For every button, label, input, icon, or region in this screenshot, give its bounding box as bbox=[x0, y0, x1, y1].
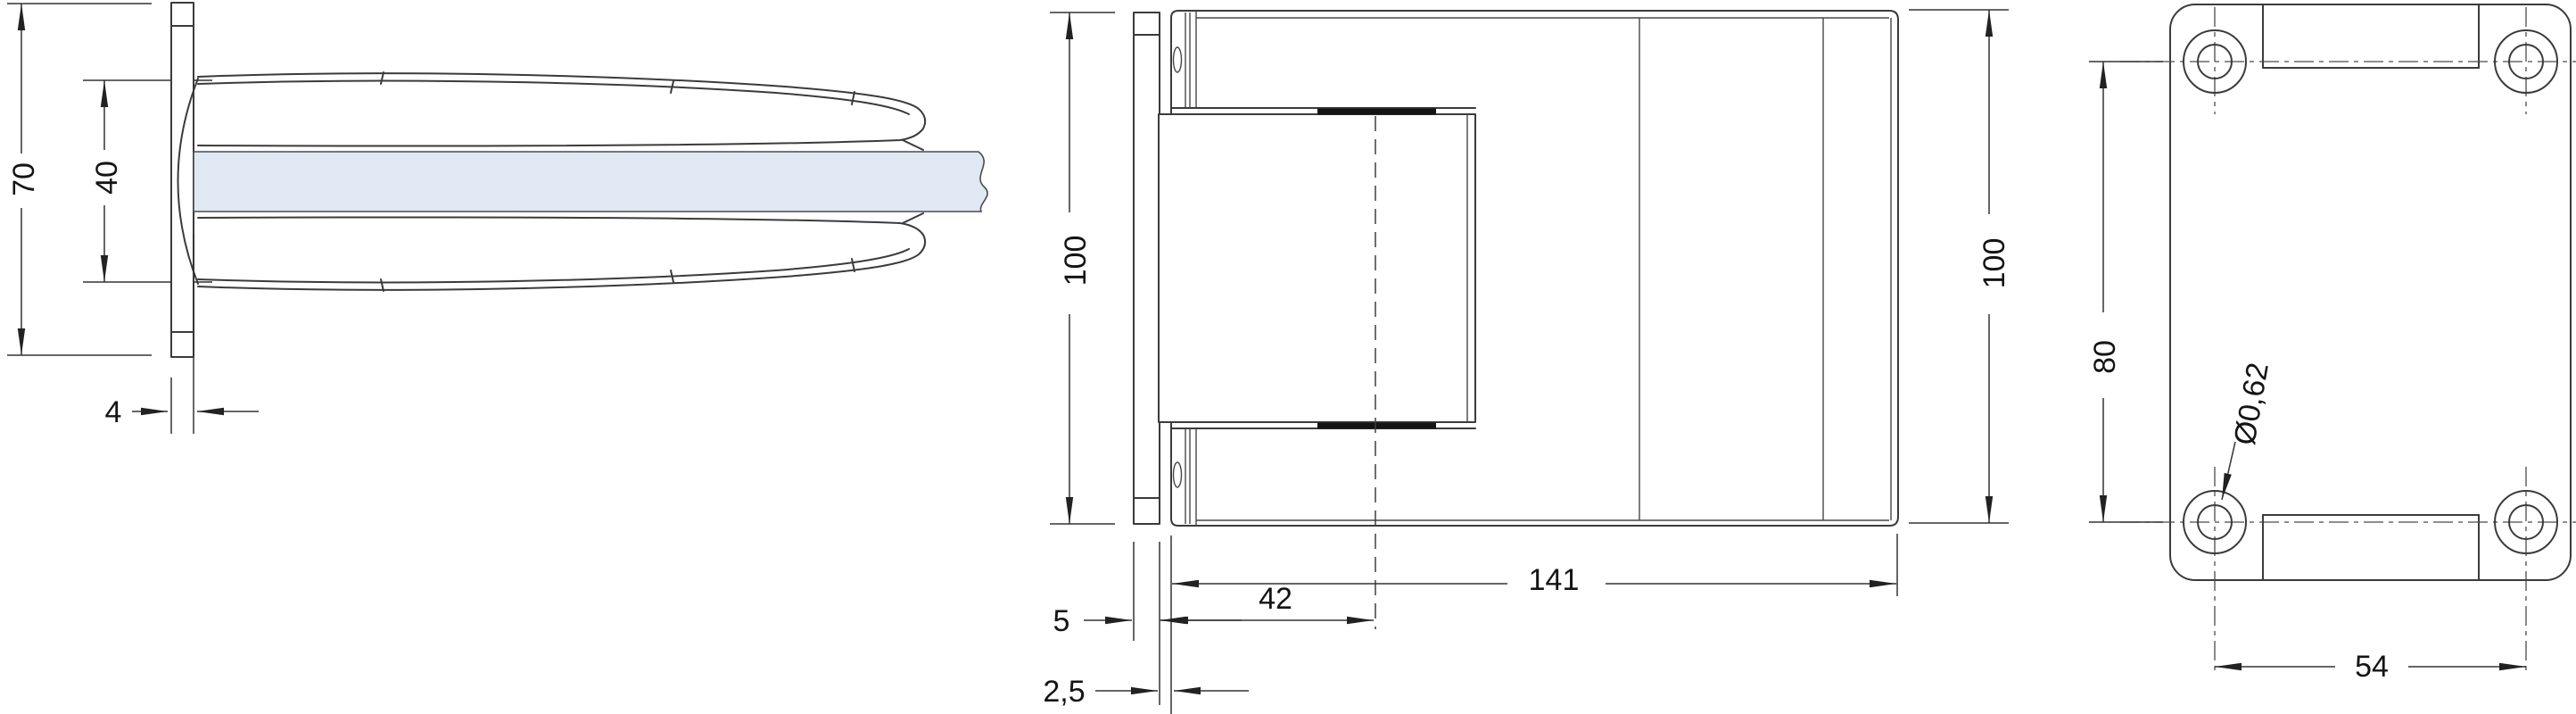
side-view: 70 40 bbox=[7, 3, 987, 434]
dim-gap: 2,5 bbox=[1043, 542, 1249, 709]
dim-2-5-label: 2,5 bbox=[1043, 675, 1085, 709]
wall-plate-edge bbox=[171, 3, 194, 357]
dim-height-left: 100 bbox=[1050, 12, 1115, 524]
wall-plate-strip bbox=[1134, 12, 1160, 524]
dim-pivot-offset: 42 bbox=[1160, 582, 1374, 620]
dim-plate-thickness-front: 5 bbox=[1053, 542, 1242, 641]
dim-height-right: 100 bbox=[1909, 10, 2011, 523]
dim-total-height: 70 bbox=[7, 4, 152, 355]
dim-40-label: 40 bbox=[90, 161, 124, 195]
plan-view: 80 54 Ø0,62 bbox=[2088, 4, 2576, 684]
dim-5-label: 5 bbox=[1053, 604, 1070, 638]
dim-54-label: 54 bbox=[2355, 650, 2389, 684]
dim-42-label: 42 bbox=[1259, 582, 1292, 616]
clamp-upper-jaw bbox=[198, 72, 925, 150]
dim-hole-pitch-vertical: 80 bbox=[2088, 62, 2163, 522]
mounting-plate bbox=[2170, 4, 2571, 580]
dim-70-label: 70 bbox=[7, 162, 41, 196]
gasket-bottom bbox=[1317, 423, 1436, 429]
dim-hole-pitch-horizontal: 54 bbox=[2215, 650, 2526, 684]
dim-80-label: 80 bbox=[2088, 340, 2122, 374]
dim-4-label: 4 bbox=[105, 395, 122, 429]
front-view: 100 100 141 42 5 bbox=[1043, 10, 2011, 714]
technical-drawing: 70 40 bbox=[0, 0, 2576, 714]
dim-100-left-label: 100 bbox=[1059, 236, 1093, 286]
cover-plate bbox=[1159, 114, 1475, 422]
clamp-lower-jaw bbox=[198, 213, 925, 291]
dim-100-right-label: 100 bbox=[1977, 238, 2011, 289]
gasket-top bbox=[1317, 109, 1436, 115]
glass-panel bbox=[194, 152, 987, 212]
dim-141-label: 141 bbox=[1529, 563, 1580, 597]
dim-total-width: 141 bbox=[1171, 534, 1897, 714]
